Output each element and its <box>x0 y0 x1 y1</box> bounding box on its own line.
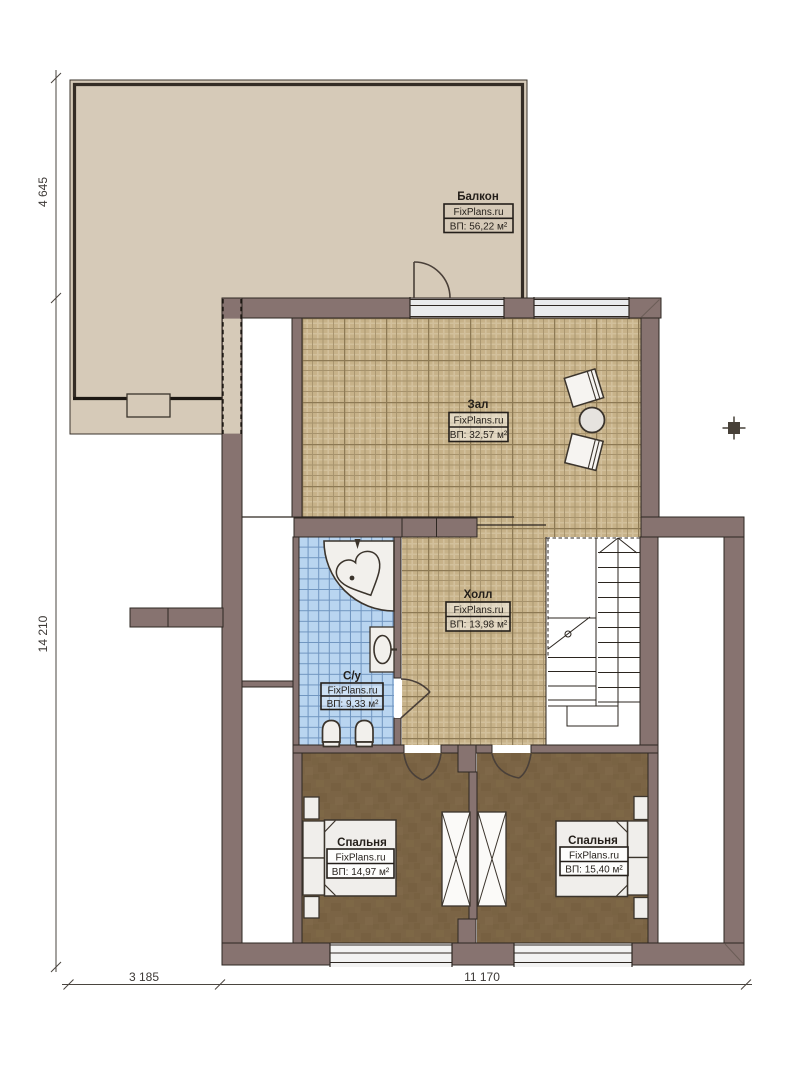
svg-text:FixPlans.ru: FixPlans.ru <box>453 416 503 427</box>
svg-text:ВП: 14,97 м²: ВП: 14,97 м² <box>332 867 390 878</box>
svg-text:Спальня: Спальня <box>568 835 618 847</box>
svg-text:ВП: 56,22 м²: ВП: 56,22 м² <box>450 222 508 233</box>
svg-text:FixPlans.ru: FixPlans.ru <box>453 207 503 218</box>
svg-text:Спальня: Спальня <box>337 837 387 849</box>
svg-text:ВП: 32,57 м²: ВП: 32,57 м² <box>450 430 508 441</box>
svg-text:FixPlans.ru: FixPlans.ru <box>569 851 619 862</box>
svg-text:Зал: Зал <box>468 399 489 411</box>
svg-text:ВП: 13,98 м²: ВП: 13,98 м² <box>450 620 508 631</box>
svg-text:FixPlans.ru: FixPlans.ru <box>335 853 385 864</box>
svg-text:С/у: С/у <box>343 671 362 683</box>
svg-text:14 210: 14 210 <box>36 615 50 652</box>
svg-text:FixPlans.ru: FixPlans.ru <box>327 686 377 697</box>
svg-text:ВП: 15,40 м²: ВП: 15,40 м² <box>565 865 623 876</box>
svg-text:3 185: 3 185 <box>129 970 159 984</box>
svg-text:Балкон: Балкон <box>457 191 499 203</box>
svg-text:FixPlans.ru: FixPlans.ru <box>453 605 503 616</box>
svg-text:4 645: 4 645 <box>36 177 50 207</box>
svg-text:ВП: 9,33 м²: ВП: 9,33 м² <box>327 699 380 710</box>
svg-text:11 170: 11 170 <box>464 970 500 984</box>
svg-text:Холл: Холл <box>464 589 493 601</box>
